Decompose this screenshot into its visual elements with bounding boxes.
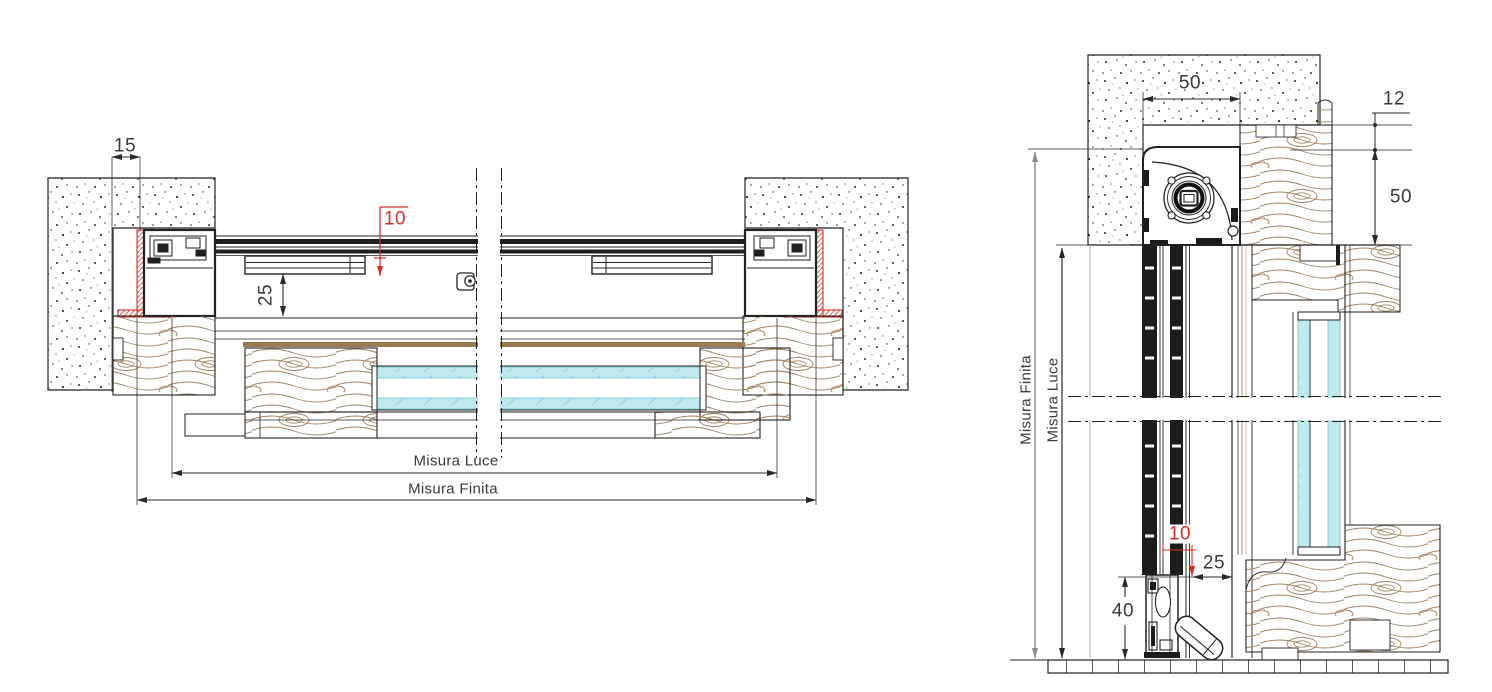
- roller-mechanism: [1164, 173, 1214, 223]
- screen-handle: [457, 273, 475, 290]
- dim-label-rail-depth: 25: [1201, 554, 1227, 573]
- side-channel-right: [745, 230, 816, 316]
- dim-label-box-height: 50: [1390, 188, 1412, 207]
- dim-label-wall-gap: 15: [114, 137, 136, 156]
- guide-rail: [1186, 245, 1246, 658]
- glass-unit-left-view: [372, 366, 706, 410]
- side-channel-left: [144, 230, 215, 316]
- dim-label-reveal-offset: 12: [1383, 90, 1405, 109]
- dim-label-finished-width: Misura Finita: [408, 482, 498, 497]
- technical-drawing: [0, 0, 1492, 692]
- dim-label-screen-depth: 25: [257, 284, 276, 306]
- sill-wood: [1246, 525, 1440, 660]
- dim-label-screen-gap: 10: [384, 210, 406, 229]
- drawing-canvas: 15 10 25 Misura Luce Misura Finita 50 12…: [0, 0, 1492, 692]
- right-section-drawing: [1010, 55, 1448, 673]
- dim-label-rail-gap: 10: [1167, 525, 1193, 544]
- glass-unit-right-view: [1298, 312, 1340, 555]
- floor: [1010, 660, 1448, 673]
- screen-bundle-left: [245, 256, 365, 274]
- dim-label-clear-width: Misura Luce: [413, 454, 498, 469]
- screen-bundle-right: [592, 256, 712, 274]
- break-lines-left-view: [477, 168, 502, 458]
- dim-label-finished-height: Misura Finita: [1019, 355, 1034, 445]
- bottom-bar: [1144, 575, 1227, 664]
- break-lines-right-view: [1068, 397, 1445, 422]
- dim-label-clear-height: Misura Luce: [1046, 357, 1061, 442]
- dim-label-bar-height: 40: [1110, 602, 1136, 621]
- dim-label-box-width: 50: [1179, 74, 1201, 93]
